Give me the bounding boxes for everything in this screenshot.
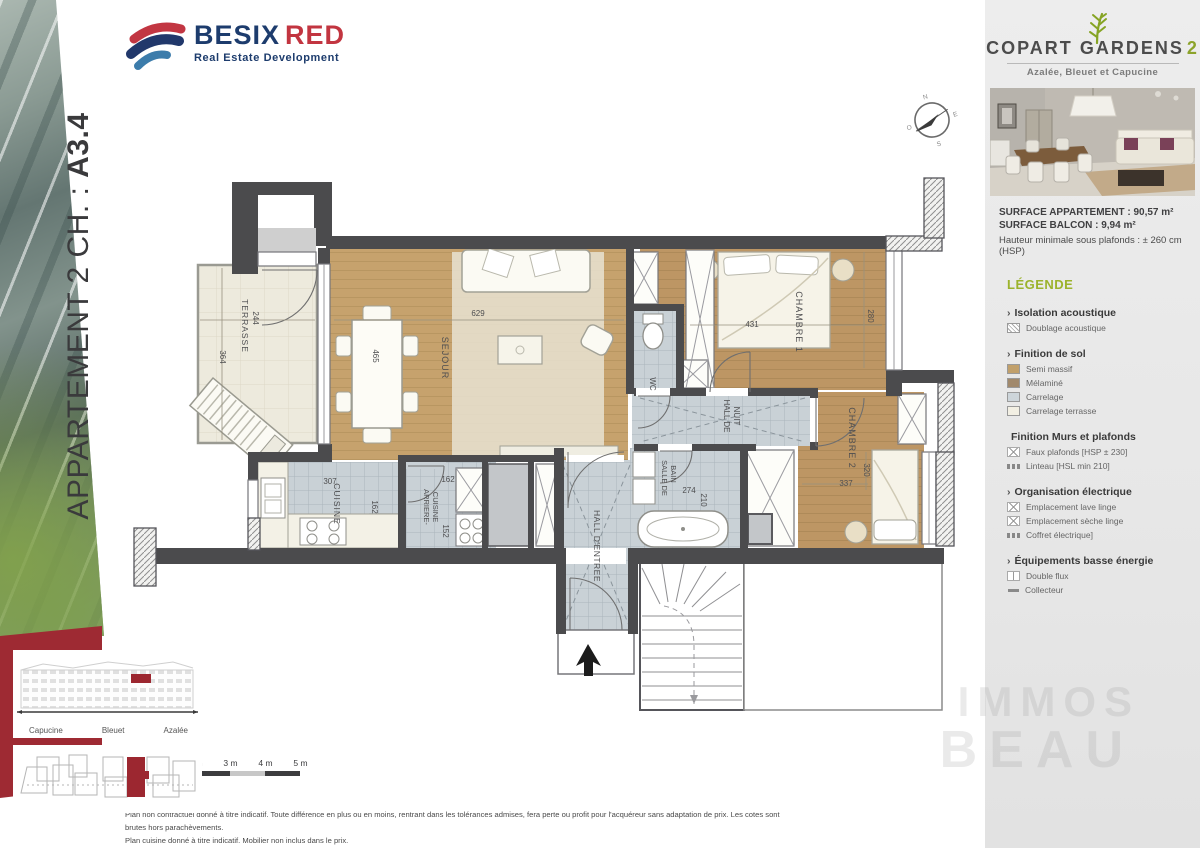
dim-chambre2-a: 320 — [862, 463, 871, 477]
label-halldenuit-1: HALL DE — [722, 399, 731, 432]
legend-item-label: Carrelage terrasse — [1026, 406, 1096, 416]
legend-section-electrique: ›Organisation électrique Emplacement lav… — [1007, 486, 1200, 540]
lave-linge-swatch-icon — [1007, 502, 1020, 512]
legend-item-label: Emplacement sèche linge — [1026, 516, 1123, 526]
sofa — [462, 249, 590, 292]
duct-block — [748, 514, 772, 544]
legend-section-murs: Finition Murs et plafonds Faux plafonds … — [1007, 431, 1200, 471]
label-cuisine: CUISINE — [332, 483, 342, 524]
label-sejour: SEJOUR — [440, 337, 450, 380]
carrelage-swatch-icon — [1007, 392, 1020, 402]
legend-item-label: Coffret électrique] — [1026, 530, 1093, 540]
collecteur-swatch-icon — [1008, 589, 1019, 592]
surface-info: SURFACE APPARTEMENT : 90,57 m² SURFACE B… — [999, 206, 1200, 257]
svg-text:E: E — [952, 111, 959, 119]
building-label-azalee: Azalée — [164, 726, 188, 735]
scale-label: 5 m — [283, 758, 318, 768]
semi-massif-swatch-icon — [1007, 364, 1020, 374]
label-chambre2: CHAMBRE 2 — [847, 407, 857, 469]
disclaimer: Plan non contractuel donné à titre indic… — [125, 808, 785, 847]
seche-linge-swatch-icon — [1007, 516, 1020, 526]
dim-sejour-b: 465 — [371, 349, 380, 363]
dim-terrasse-b: 364 — [218, 350, 227, 364]
legend-item-label: Carrelage — [1026, 392, 1063, 402]
hatch-swatch-icon — [1007, 323, 1020, 333]
dim-arriere-a: 162 — [441, 475, 455, 484]
svg-text:N: N — [922, 93, 929, 101]
elevation-panel: Capucine Bleuet Azalée — [13, 650, 202, 738]
legend-section-title: Finition de sol — [1015, 348, 1086, 360]
dim-arriere-b: 152 — [441, 524, 450, 538]
dim-cuisine-a: 307 — [323, 477, 337, 486]
carrelage-terrasse-swatch-icon — [1007, 406, 1020, 416]
interior-photo — [990, 88, 1195, 196]
dim-chambre1-b: 280 — [866, 309, 875, 323]
compass-icon: N E S O — [899, 87, 966, 156]
project-subtitle: Azalée, Bleuet et Capucine — [985, 67, 1200, 78]
disclaimer-line2: Plan cuisine donné à titre indicatif. Mo… — [125, 834, 785, 847]
legend-title: LÉGENDE — [1007, 277, 1200, 292]
dim-sdb-a: 274 — [682, 486, 696, 495]
shaft-block — [488, 464, 530, 546]
void-core — [744, 562, 942, 710]
label-sdb-2: BAIN — [669, 465, 678, 483]
project-header: COPART GARDENS2 Azalée, Bleuet et Capuci… — [985, 0, 1200, 78]
legend-section-isolation: ›Isolation acoustique Doublage acoustiqu… — [1007, 307, 1200, 333]
chevron-icon: › — [1007, 307, 1011, 319]
double-flux-swatch-icon — [1007, 571, 1020, 581]
coffret-swatch-icon — [1007, 533, 1020, 538]
fern-icon — [1085, 12, 1111, 44]
disclaimer-line1: Plan non contractuel donné à titre indic… — [125, 808, 785, 834]
scale-label: 3 m — [213, 758, 248, 768]
entry-landing — [558, 630, 634, 674]
building-label-bleuet: Bleuet — [102, 726, 125, 735]
svg-text:O: O — [906, 124, 913, 132]
site-plan-panel — [13, 745, 202, 813]
toilet — [643, 314, 663, 349]
coffee-table — [498, 336, 542, 364]
label-sdb-1: SALLE DE — [660, 460, 669, 496]
label-hallentree: HALL D'ENTREE — [592, 510, 602, 582]
legend-item-label: Semi massif — [1026, 364, 1072, 374]
project-rule — [1007, 63, 1179, 64]
dim-chambre2-b: 337 — [839, 479, 853, 488]
legend-item-label: Emplacement lave linge — [1026, 502, 1116, 512]
surface-line2: SURFACE BALCON : 9,94 m² — [999, 219, 1200, 232]
dim-chambre1-a: 431 — [745, 320, 759, 329]
brochure-page: APPARTEMENT 2 CH. : A3.4 BESIXRED Real E… — [0, 0, 1200, 848]
legend-section-title: Équipements basse énergie — [1015, 555, 1154, 567]
legend-section-title: Isolation acoustique — [1015, 307, 1117, 319]
legend-section-sol: ›Finition de sol Semi massif Mélaminé Ca… — [1007, 348, 1200, 416]
surface-line1: SURFACE APPARTEMENT : 90,57 m² — [999, 206, 1200, 219]
label-arriere-1: ARRIERE- — [422, 489, 431, 525]
dim-terrasse-a: 244 — [251, 311, 260, 325]
label-arriere-2: CUISINE — [431, 492, 440, 522]
sidebar: COPART GARDENS2 Azalée, Bleuet et Capuci… — [985, 0, 1200, 848]
dim-sdb-b: 210 — [699, 493, 708, 507]
washer-dryer — [456, 514, 486, 546]
project-name-1: COPART — [986, 38, 1073, 58]
legend-item-label: Faux plafonds [HSP ± 230] — [1026, 447, 1127, 457]
legend-item-label: Doublage acoustique — [1026, 323, 1106, 333]
legend-item-label: Mélaminé — [1026, 378, 1063, 388]
legend-section-energie: ›Équipements basse énergie Double flux C… — [1007, 555, 1200, 595]
legend-item-label: Double flux — [1026, 571, 1069, 581]
bed-chambre1 — [697, 252, 854, 348]
dim-sejour-a: 629 — [471, 309, 485, 318]
legend-item-label: Linteau [HSL min 210] — [1026, 461, 1110, 471]
chevron-icon: › — [1007, 486, 1011, 498]
label-wc: WC — [648, 377, 657, 391]
site-plan — [13, 745, 202, 813]
legend-section-title: Finition Murs et plafonds — [1011, 431, 1136, 443]
legend-section-title: Organisation électrique — [1015, 486, 1132, 498]
label-chambre1: CHAMBRE 1 — [794, 291, 804, 353]
linteau-swatch-icon — [1007, 464, 1020, 469]
dim-cuisine-b: 162 — [370, 500, 379, 514]
label-halldenuit-2: NUIT — [732, 407, 741, 426]
surface-line3: Hauteur minimale sous plafonds : ± 260 c… — [999, 235, 1200, 257]
svg-text:S: S — [936, 140, 943, 148]
building-labels: Capucine Bleuet Azalée — [13, 726, 202, 735]
chevron-icon: › — [1007, 348, 1011, 360]
faux-plafond-swatch-icon — [1007, 447, 1020, 457]
melamine-swatch-icon — [1007, 378, 1020, 388]
chevron-icon: › — [1007, 555, 1011, 567]
building-elevation — [13, 650, 202, 720]
building-label-capucine: Capucine — [29, 726, 63, 735]
scale-label: 4 m — [248, 758, 283, 768]
legend-item-label: Collecteur — [1025, 585, 1063, 595]
project-number: 2 — [1187, 38, 1199, 58]
stairwell — [640, 562, 744, 710]
label-terrasse: TERRASSE — [240, 299, 250, 353]
